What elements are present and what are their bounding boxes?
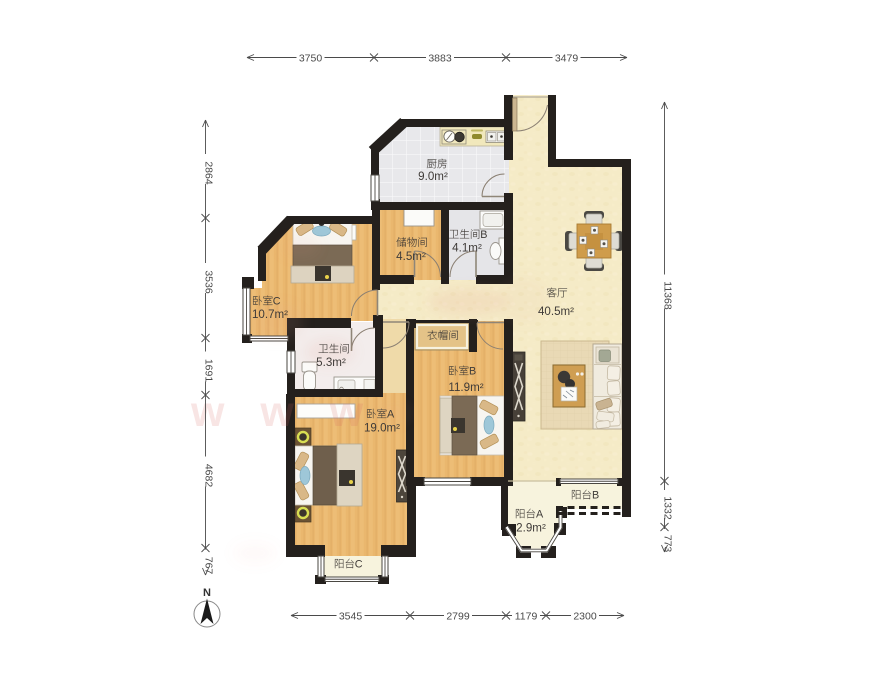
svg-text:2864: 2864 (203, 161, 215, 185)
svg-text:9.0m²: 9.0m² (418, 170, 448, 183)
svg-text:3545: 3545 (339, 611, 363, 623)
svg-text:1332: 1332 (662, 496, 674, 520)
svg-text:3479: 3479 (555, 53, 579, 65)
svg-text:B: B (469, 366, 476, 378)
svg-text:N: N (203, 587, 211, 599)
svg-text:2.9m²: 2.9m² (516, 522, 546, 535)
svg-text:4.1m²: 4.1m² (452, 242, 482, 255)
svg-text:767: 767 (203, 557, 215, 575)
svg-text:19.0m²: 19.0m² (364, 422, 400, 435)
svg-text:3883: 3883 (428, 53, 452, 65)
svg-text:3750: 3750 (299, 53, 323, 65)
svg-text:C: C (273, 296, 281, 308)
svg-text:4682: 4682 (203, 464, 215, 488)
svg-text:2799: 2799 (446, 611, 470, 623)
svg-text:11.9m²: 11.9m² (448, 381, 483, 394)
svg-text:11368: 11368 (662, 281, 674, 310)
svg-text:2300: 2300 (573, 611, 597, 623)
svg-text:5.3m²: 5.3m² (316, 356, 346, 369)
svg-text:4.5m²: 4.5m² (396, 250, 426, 263)
svg-text:A: A (536, 509, 544, 521)
svg-text:40.5m²: 40.5m² (538, 305, 574, 318)
svg-text:1691: 1691 (203, 359, 215, 383)
svg-text:773: 773 (662, 535, 674, 553)
svg-text:B: B (592, 490, 599, 502)
svg-text:B: B (480, 229, 487, 241)
svg-text:w w w: w w w (190, 388, 375, 436)
svg-text:10.7m²: 10.7m² (252, 308, 288, 321)
svg-text:A: A (387, 409, 395, 421)
svg-text:1179: 1179 (515, 611, 538, 623)
svg-text:3536: 3536 (203, 270, 215, 294)
svg-text:C: C (355, 559, 363, 571)
